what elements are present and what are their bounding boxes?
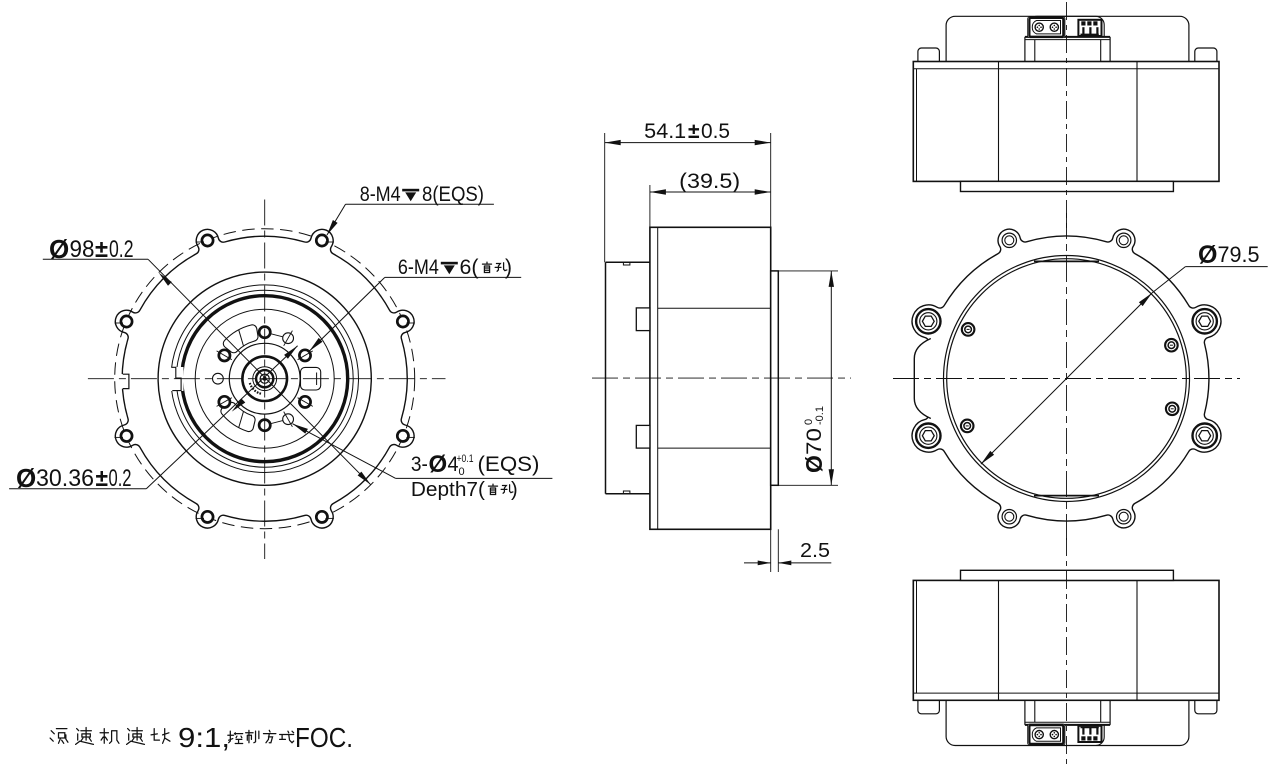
svg-text:6-M4: 6-M4	[398, 256, 439, 279]
svg-text:+0.1: +0.1	[457, 453, 474, 465]
svg-text:Ø: Ø	[801, 455, 827, 473]
svg-text:54.1: 54.1	[644, 120, 686, 143]
svg-text:Depth7(: Depth7(	[411, 479, 485, 501]
svg-text:Ø: Ø	[429, 451, 448, 478]
svg-text:0: 0	[459, 466, 465, 478]
svg-text:8-M4: 8-M4	[360, 183, 401, 206]
svg-text:2.5: 2.5	[800, 540, 830, 562]
svg-text:30.36: 30.36	[36, 465, 94, 492]
svg-text:3-: 3-	[411, 453, 428, 476]
svg-text:98: 98	[70, 236, 95, 263]
svg-text:0.2: 0.2	[109, 465, 132, 492]
svg-text:±: ±	[96, 465, 109, 492]
svg-text:Ø: Ø	[16, 463, 36, 493]
svg-text:±: ±	[95, 236, 108, 263]
svg-text:(EQS): (EQS)	[478, 453, 540, 476]
svg-text:9:1,: 9:1,	[178, 722, 230, 753]
svg-text:0.2: 0.2	[109, 236, 134, 263]
svg-text:Ø: Ø	[49, 234, 69, 264]
svg-text:(39.5): (39.5)	[679, 170, 740, 193]
svg-text:±: ±	[688, 120, 700, 143]
svg-text:FOC.: FOC.	[295, 722, 353, 753]
svg-text:Ø: Ø	[1198, 241, 1217, 269]
svg-text:8(EQS): 8(EQS)	[422, 183, 484, 206]
svg-text:0.5: 0.5	[701, 120, 730, 143]
svg-text:70: 70	[803, 428, 826, 455]
svg-text:): )	[511, 479, 518, 501]
svg-text:-0.1: -0.1	[814, 406, 826, 425]
svg-text:79.5: 79.5	[1218, 242, 1260, 267]
svg-text:): )	[505, 256, 512, 279]
svg-text:6(: 6(	[460, 256, 479, 279]
